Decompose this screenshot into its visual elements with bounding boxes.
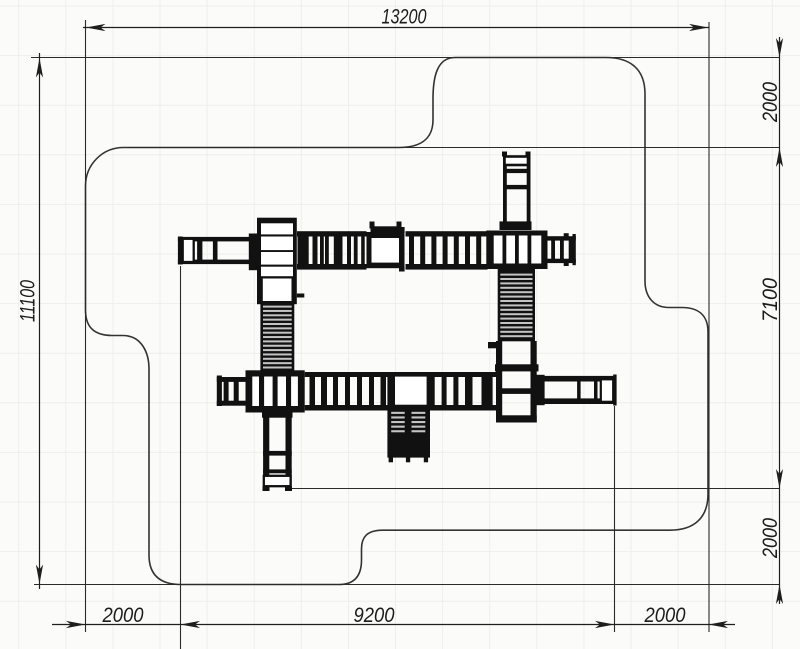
svg-text:11100: 11100 [17, 280, 40, 322]
svg-text:7100: 7100 [759, 278, 782, 322]
svg-text:13200: 13200 [382, 6, 427, 29]
svg-text:9200: 9200 [354, 604, 395, 627]
svg-text:2000: 2000 [759, 82, 782, 123]
svg-text:2000: 2000 [102, 604, 144, 627]
svg-text:2000: 2000 [759, 518, 782, 559]
svg-text:2000: 2000 [644, 604, 686, 627]
